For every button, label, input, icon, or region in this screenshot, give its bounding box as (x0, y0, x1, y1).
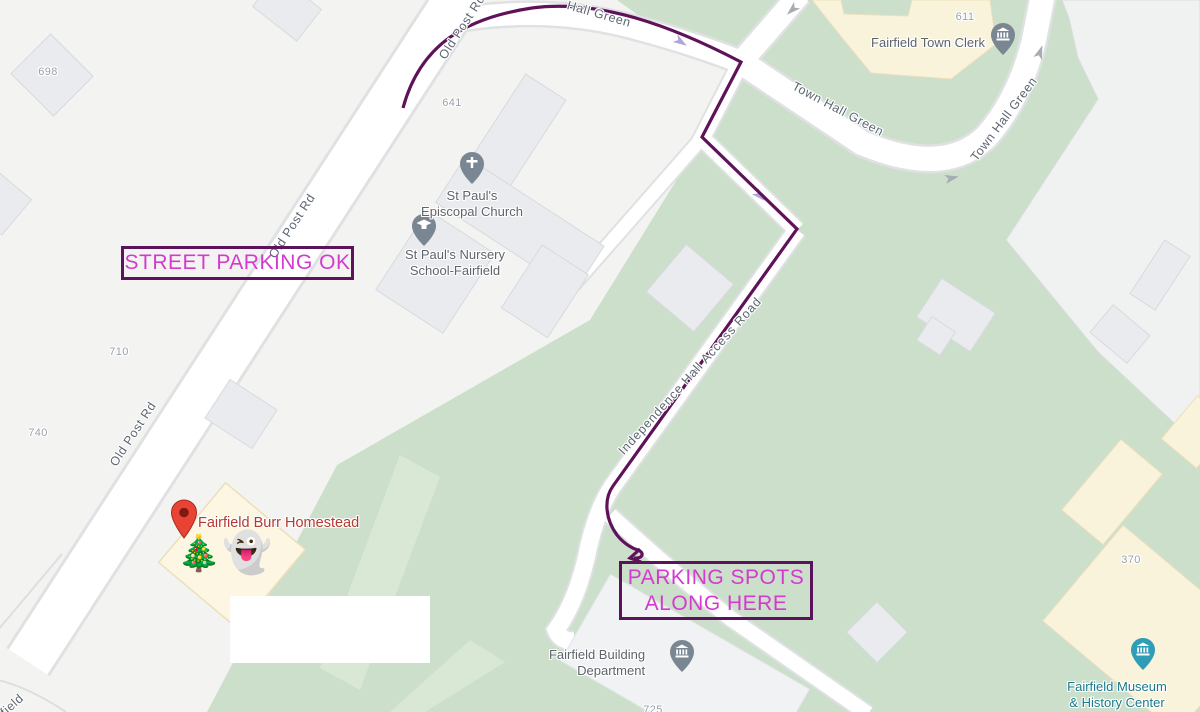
house-number: 641 (442, 97, 462, 109)
house-number: 710 (109, 346, 129, 358)
street-parking-annotation: STREET PARKING OK (121, 246, 354, 280)
white-redaction-box (230, 596, 430, 663)
building (253, 0, 322, 41)
poi-label-burr-homestead[interactable]: Fairfield Burr Homestead (198, 515, 359, 531)
ghost-emoji: 👻 (222, 533, 272, 573)
building (0, 165, 31, 235)
house-number: 698 (38, 66, 58, 78)
house-number: 725 (643, 704, 663, 712)
museum-icon (1130, 637, 1156, 671)
government-building-icon (990, 22, 1016, 56)
house-number: 611 (956, 11, 975, 23)
poi-label-nursery-school[interactable]: St Paul's Nursery School-Fairfield (405, 247, 505, 279)
government-building-icon (669, 639, 695, 673)
poi-label-museum[interactable]: Fairfield Museum & History Center Rotati… (1067, 679, 1167, 712)
parking-spots-annotation: PARKING SPOTS ALONG HERE (619, 561, 813, 620)
house-number: 740 (28, 427, 48, 439)
poi-label-church[interactable]: St Paul's Episcopal Church (421, 188, 523, 220)
cross-icon (459, 151, 485, 185)
poi-label-building-dept[interactable]: Fairfield Building Department (549, 647, 645, 679)
house-number: 370 (1121, 554, 1141, 566)
christmas-tree-emoji: 🎄 (177, 536, 221, 571)
poi-label-town-clerk[interactable]: Fairfield Town Clerk (871, 35, 985, 51)
map-canvas[interactable]: Old Post Rd Old Post Rd Old Post Rd Hall… (0, 0, 1200, 712)
